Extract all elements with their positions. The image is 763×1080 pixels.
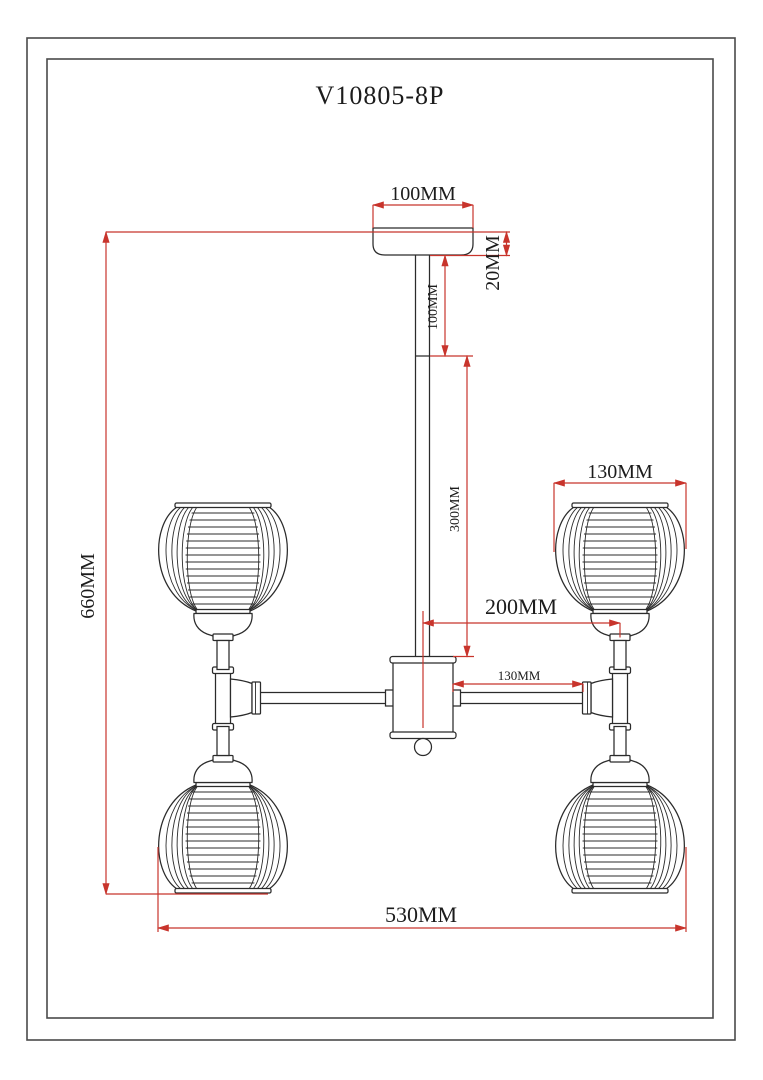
dim-arm-length: 130MM <box>453 668 583 692</box>
fixture-drawing <box>159 228 685 893</box>
hub-finial-ball <box>415 739 432 756</box>
dim-canopy-width-label: 100MM <box>390 183 456 205</box>
dim-stem-lower: 300MM <box>448 356 474 657</box>
dim-arm-length-label: 130MM <box>498 668 541 683</box>
lamp-shade-bottom-right <box>556 727 685 894</box>
model-number: V10805-8P <box>316 81 445 110</box>
dim-total-width-label: 530MM <box>385 902 457 927</box>
dim-stem-lower-label: 300MM <box>448 486 463 532</box>
dim-stem-upper: 100MM <box>426 256 473 357</box>
dim-shade-diameter-label: 130MM <box>587 461 653 483</box>
dim-canopy-height-label: 20MM <box>482 235 504 291</box>
dim-stem-upper-label: 100MM <box>426 284 441 330</box>
technical-drawing: V10805-8P <box>0 0 763 1080</box>
dim-canopy-width: 100MM <box>373 183 473 228</box>
lamp-shade-top-right <box>556 503 685 670</box>
dim-total-height-label: 660MM <box>77 553 99 619</box>
left-arm-tee <box>213 667 387 730</box>
lamp-shade-bottom-left <box>159 727 288 894</box>
lamp-shade-top-left <box>159 503 288 670</box>
dim-center-offset-label: 200MM <box>485 594 557 619</box>
right-arm-tee <box>457 667 631 730</box>
drawing-page: V10805-8P <box>0 0 763 1080</box>
